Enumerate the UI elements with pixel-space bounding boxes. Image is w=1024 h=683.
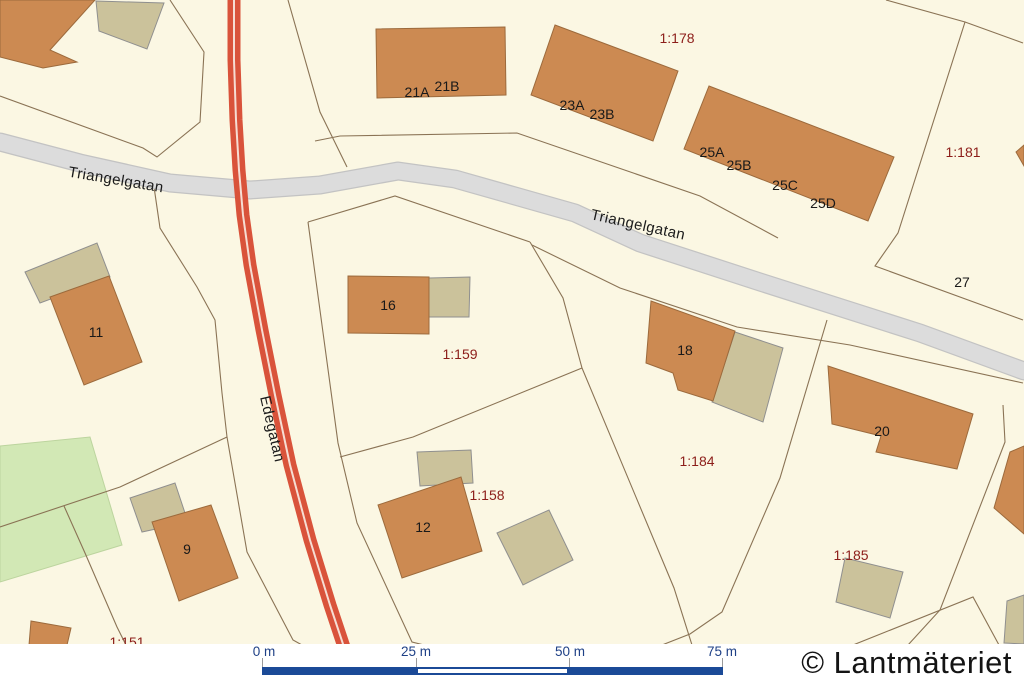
- building-top-left: [0, 0, 95, 68]
- building-9: [152, 505, 238, 601]
- outbuilding-12: [417, 450, 473, 486]
- copyright-attribution: © Lantmäteriet: [801, 644, 1012, 683]
- house-number-16: 16: [380, 297, 396, 313]
- parcel-label-1-159: 1:159: [442, 346, 477, 362]
- scale-segment-0-25: [262, 667, 416, 675]
- scale-tick: [416, 658, 417, 667]
- house-number-23a: 23A: [560, 97, 585, 113]
- house-number-25d: 25D: [810, 195, 836, 211]
- house-number-12: 12: [415, 519, 431, 535]
- parcel-label-1-185: 1:185: [833, 547, 868, 563]
- scale-segment-50-75: [569, 667, 723, 675]
- house-number-11: 11: [89, 324, 104, 340]
- building-bottom-left: [29, 621, 71, 644]
- outbuilding-bottom-right: [1004, 595, 1024, 644]
- house-number-21b: 21B: [435, 78, 460, 94]
- map-footer: 0 m 25 m 50 m 75 m © Lantmäteriet: [0, 644, 1024, 683]
- road-edegatan-centerline: [234, 0, 345, 644]
- building-23: [531, 25, 678, 141]
- scale-tick: [569, 658, 570, 667]
- parcel-label-1-178: 1:178: [659, 30, 694, 46]
- parcel-label-1-151: 1:151: [109, 634, 144, 644]
- map-drawing: [0, 0, 1024, 644]
- building-20: [828, 366, 973, 469]
- house-number-23b: 23B: [590, 106, 615, 122]
- scale-label-75m: 75 m: [707, 644, 737, 659]
- house-number-25a: 25A: [700, 144, 725, 160]
- house-number-25c: 25C: [772, 177, 798, 193]
- scale-label-50m: 50 m: [555, 644, 585, 659]
- outbuilding-top-left: [96, 1, 164, 49]
- house-number-25b: 25B: [727, 157, 752, 173]
- parcel-label-1-184: 1:184: [679, 453, 714, 469]
- scale-label-25m: 25 m: [401, 644, 431, 659]
- parcel-label-1-181: 1:181: [945, 144, 980, 160]
- house-number-18: 18: [677, 342, 693, 358]
- scale-segment-25-50: [416, 667, 569, 675]
- house-number-21a: 21A: [405, 84, 430, 100]
- road-edegatan: [234, 0, 345, 644]
- map-viewport: Triangelgatan Triangelgatan Edegatan 21A…: [0, 0, 1024, 683]
- outbuilding-center: [497, 510, 573, 585]
- outbuilding-1185: [836, 558, 903, 618]
- map-canvas[interactable]: Triangelgatan Triangelgatan Edegatan 21A…: [0, 0, 1024, 644]
- building-right-sliver: [1016, 145, 1024, 166]
- green-area: [0, 437, 122, 582]
- parcel-label-1-158: 1:158: [469, 487, 504, 503]
- outbuilding-16: [429, 277, 470, 317]
- scale-tick: [262, 658, 263, 667]
- house-number-20: 20: [874, 423, 890, 439]
- house-number-27: 27: [954, 274, 970, 290]
- scale-tick: [722, 658, 723, 667]
- house-number-9: 9: [183, 541, 191, 557]
- scale-label-0m: 0 m: [253, 644, 276, 659]
